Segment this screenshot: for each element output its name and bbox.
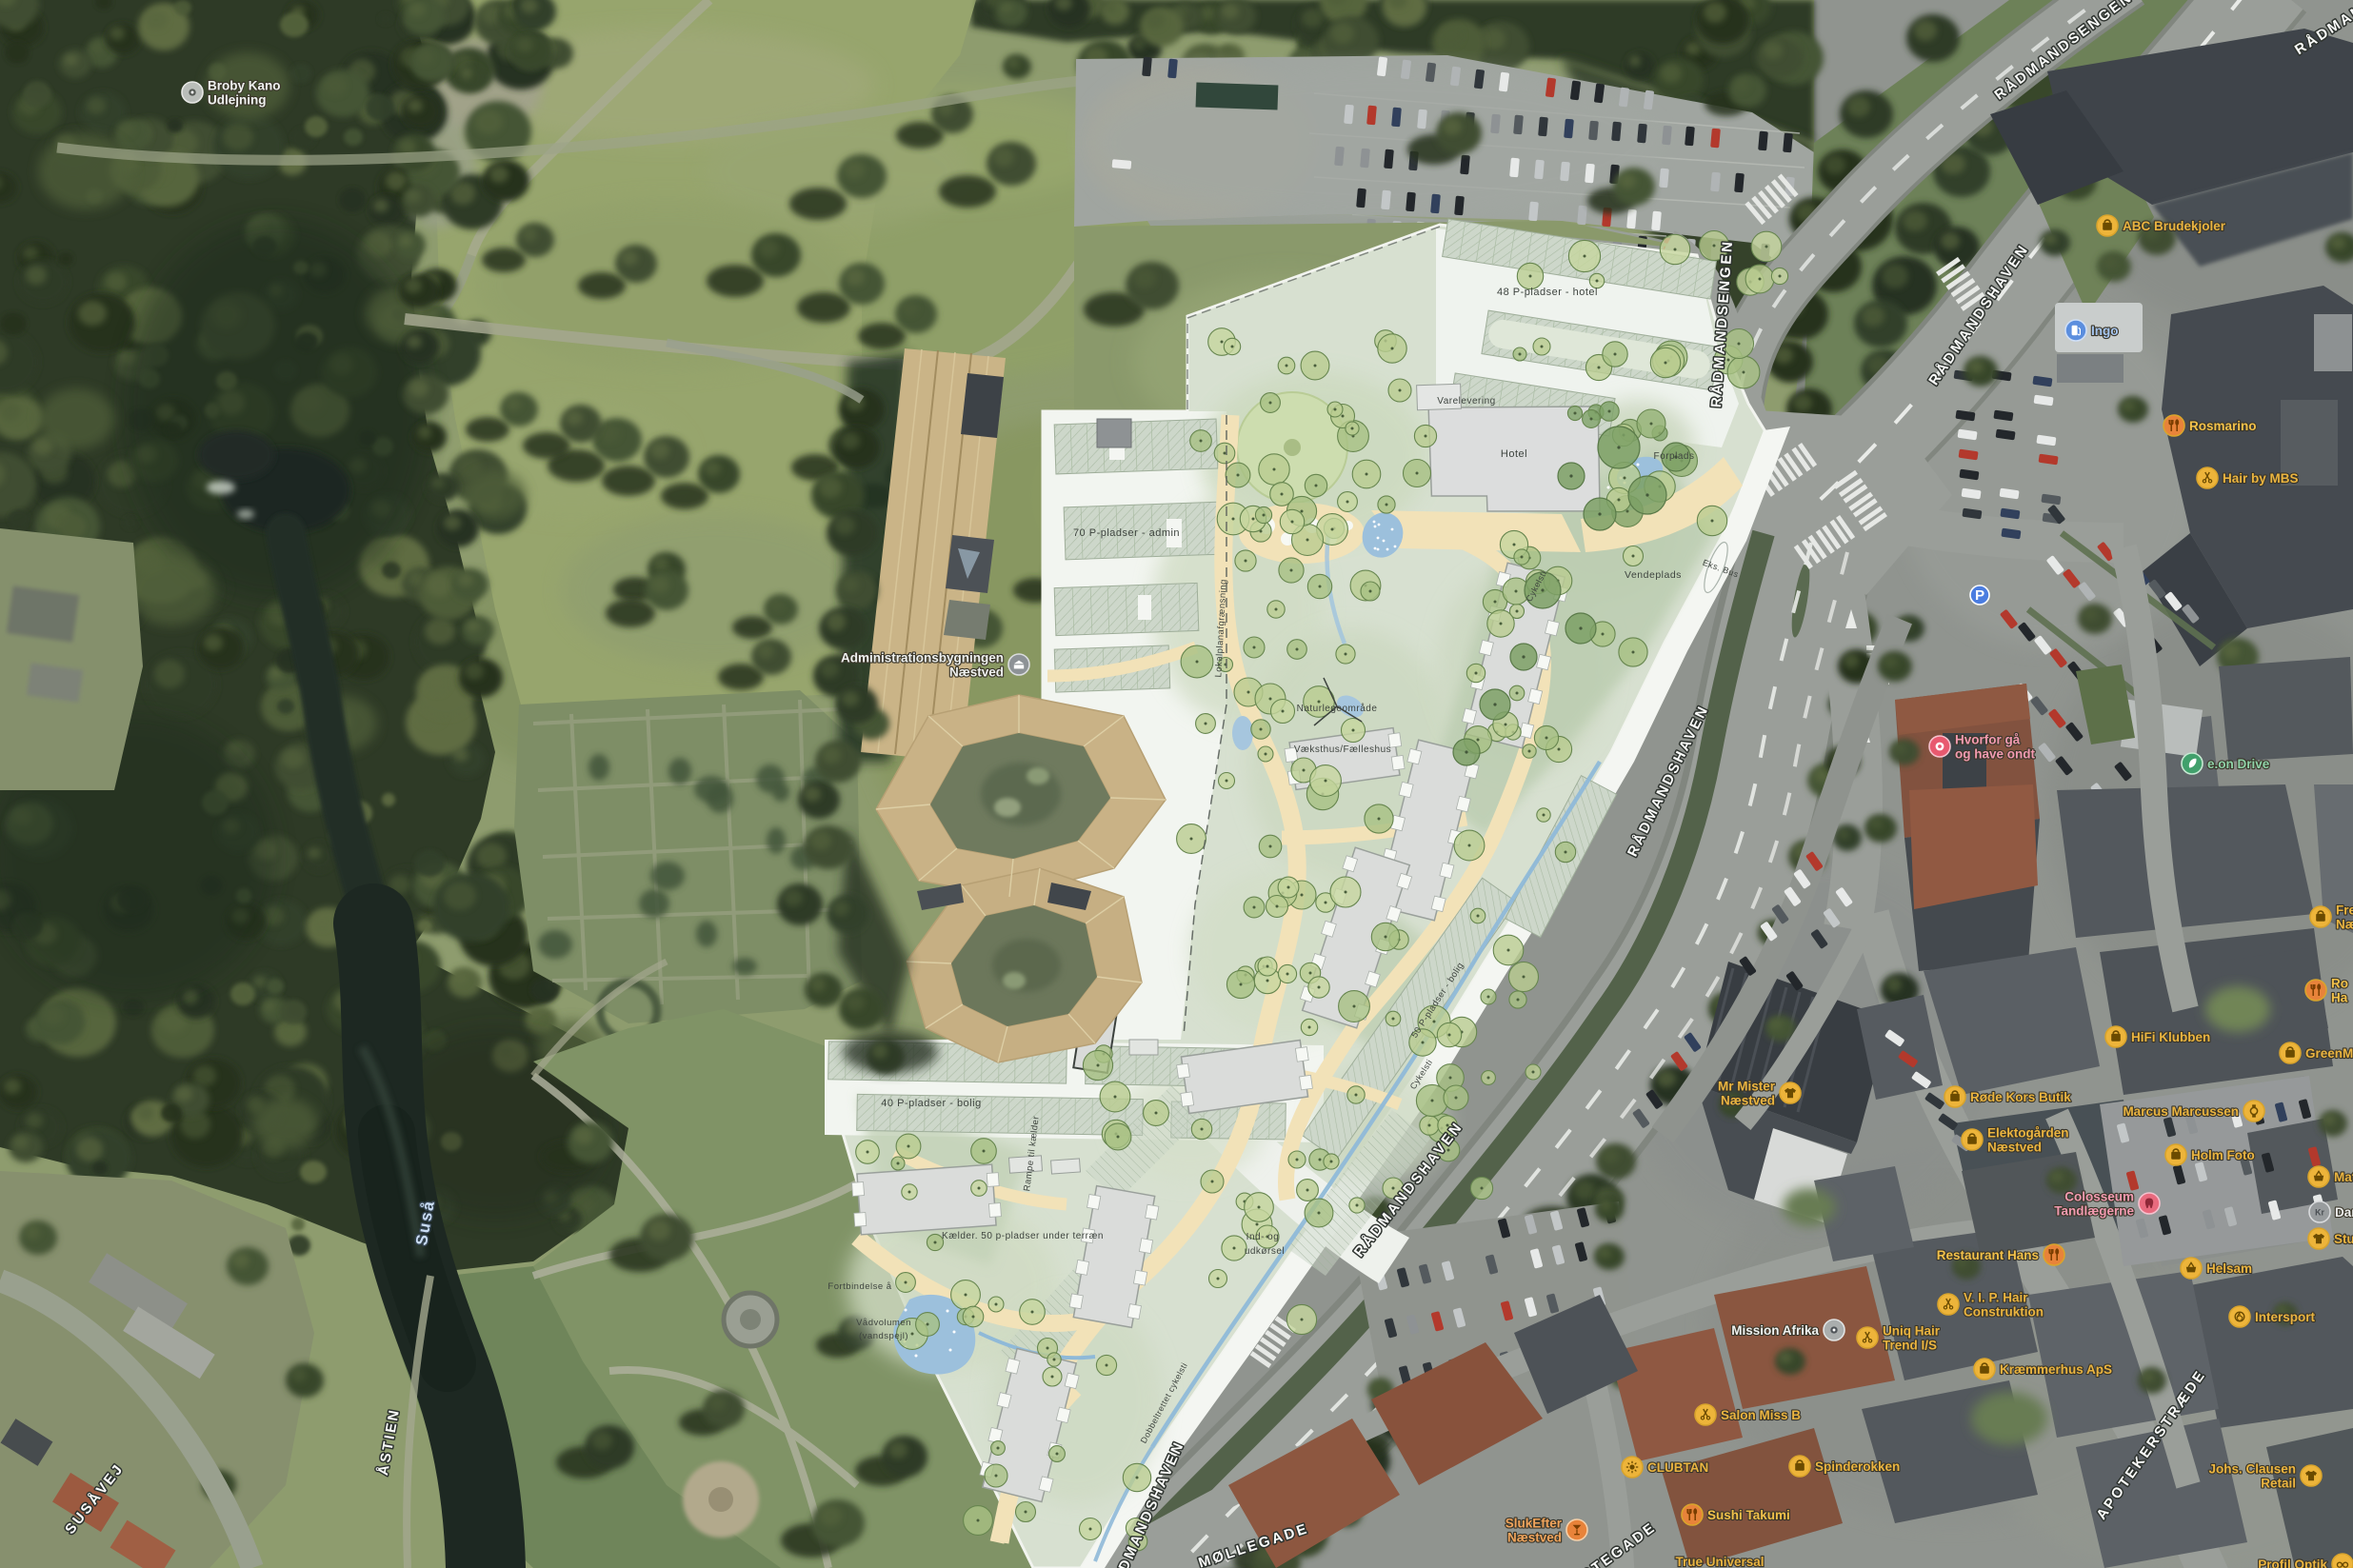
- svg-text:(vandspejl): (vandspejl): [859, 1331, 908, 1341]
- svg-text:Marcus Marcussen: Marcus Marcussen: [2123, 1104, 2239, 1119]
- svg-text:Fortbindelse å: Fortbindelse å: [828, 1281, 891, 1292]
- svg-text:Fred: Fred: [2336, 903, 2353, 918]
- svg-text:Kr: Kr: [2315, 1208, 2324, 1218]
- svg-text:Hair by MBS: Hair by MBS: [2223, 471, 2299, 486]
- svg-text:Røde Kors Butik: Røde Kors Butik: [1970, 1090, 2071, 1104]
- svg-text:P: P: [1975, 587, 1984, 604]
- svg-text:Helsam: Helsam: [2206, 1261, 2252, 1276]
- svg-text:Restaurant Hans: Restaurant Hans: [1937, 1248, 2039, 1262]
- svg-text:Elektogården: Elektogården: [1987, 1126, 2069, 1141]
- svg-text:Næstved: Næstved: [949, 665, 1004, 680]
- svg-text:Kræmmerhus ApS: Kræmmerhus ApS: [2000, 1362, 2112, 1377]
- svg-text:Holm Foto: Holm Foto: [2191, 1148, 2255, 1162]
- svg-text:HiFi Klubben: HiFi Klubben: [2131, 1030, 2210, 1044]
- svg-text:Administrationsbygningen: Administrationsbygningen: [841, 651, 1004, 665]
- svg-text:Vådvolumen: Vådvolumen: [856, 1318, 911, 1328]
- svg-text:CLUBTAN: CLUBTAN: [1647, 1460, 1708, 1475]
- svg-text:SlukEfter: SlukEfter: [1506, 1517, 1563, 1531]
- svg-text:Næstved: Næstved: [1987, 1141, 2042, 1155]
- svg-text:Mr Mister: Mr Mister: [1718, 1080, 1776, 1094]
- svg-text:Forplads: Forplads: [1654, 451, 1695, 462]
- svg-text:Salon Miss B: Salon Miss B: [1721, 1408, 1801, 1422]
- svg-text:Mata: Mata: [2334, 1170, 2353, 1184]
- svg-text:Næstved: Næstved: [1721, 1094, 1775, 1108]
- svg-text:70 P-pladser - admin: 70 P-pladser - admin: [1073, 527, 1180, 539]
- svg-text:Vendeplads: Vendeplads: [1625, 569, 1682, 581]
- svg-text:Johs. Clausen: Johs. Clausen: [2208, 1462, 2296, 1477]
- svg-text:Rosmarino: Rosmarino: [2189, 419, 2257, 433]
- svg-text:True Universal: True Universal: [1675, 1555, 1764, 1568]
- svg-text:Varelevering: Varelevering: [1437, 396, 1495, 407]
- svg-text:Ind- og: Ind- og: [1246, 1232, 1280, 1242]
- svg-text:48 P-pladser - hotel: 48 P-pladser - hotel: [1497, 287, 1598, 298]
- svg-text:V. I. P. Hair: V. I. P. Hair: [1964, 1291, 2028, 1305]
- svg-text:Mission Afrika: Mission Afrika: [1731, 1323, 1819, 1338]
- svg-text:e.on Drive: e.on Drive: [2207, 757, 2270, 771]
- svg-text:Intersport: Intersport: [2255, 1310, 2316, 1324]
- svg-text:Uniq Hair: Uniq Hair: [1883, 1324, 1941, 1339]
- svg-text:Ingo: Ingo: [2091, 324, 2119, 338]
- svg-text:ABC Brudekjoler: ABC Brudekjoler: [2123, 219, 2226, 233]
- svg-text:Spinderokken: Spinderokken: [1815, 1459, 1900, 1474]
- svg-text:Broby Kano: Broby Kano: [208, 79, 281, 93]
- svg-text:Ro: Ro: [2331, 977, 2348, 991]
- svg-text:Retail: Retail: [2261, 1477, 2296, 1491]
- svg-text:Hotel: Hotel: [1501, 448, 1527, 460]
- svg-text:Colosseum: Colosseum: [2064, 1190, 2134, 1204]
- svg-text:Udlejning: Udlejning: [208, 93, 267, 108]
- svg-text:Væksthus/Fælleshus: Væksthus/Fælleshus: [1294, 744, 1391, 755]
- svg-text:Kælder. 50 p-pladser under ter: Kælder. 50 p-pladser under terræn: [942, 1231, 1104, 1241]
- svg-text:og have ondt: og have ondt: [1955, 747, 2036, 762]
- svg-text:Studi: Studi: [2334, 1232, 2353, 1246]
- svg-text:Profil Optik: Profil Optik: [2258, 1558, 2327, 1568]
- svg-text:Hvorfor gå: Hvorfor gå: [1955, 733, 2021, 747]
- svg-text:Ha: Ha: [2331, 991, 2348, 1005]
- svg-text:Danske: Danske: [2335, 1205, 2353, 1220]
- svg-text:40 P-pladser - bolig: 40 P-pladser - bolig: [881, 1098, 981, 1109]
- svg-text:Tandlægerne: Tandlægerne: [2054, 1204, 2134, 1219]
- svg-text:Sushi Takumi: Sushi Takumi: [1707, 1508, 1790, 1522]
- svg-text:Næst: Næst: [2336, 918, 2353, 932]
- svg-text:udkørsel: udkørsel: [1245, 1246, 1285, 1257]
- svg-text:Naturlegeområde: Naturlegeområde: [1297, 703, 1378, 714]
- svg-text:Næstved: Næstved: [1507, 1531, 1562, 1545]
- svg-text:Trend I/S: Trend I/S: [1883, 1339, 1937, 1353]
- svg-text:GreenMin: GreenMin: [2305, 1046, 2353, 1061]
- svg-text:Construktion: Construktion: [1964, 1305, 2044, 1320]
